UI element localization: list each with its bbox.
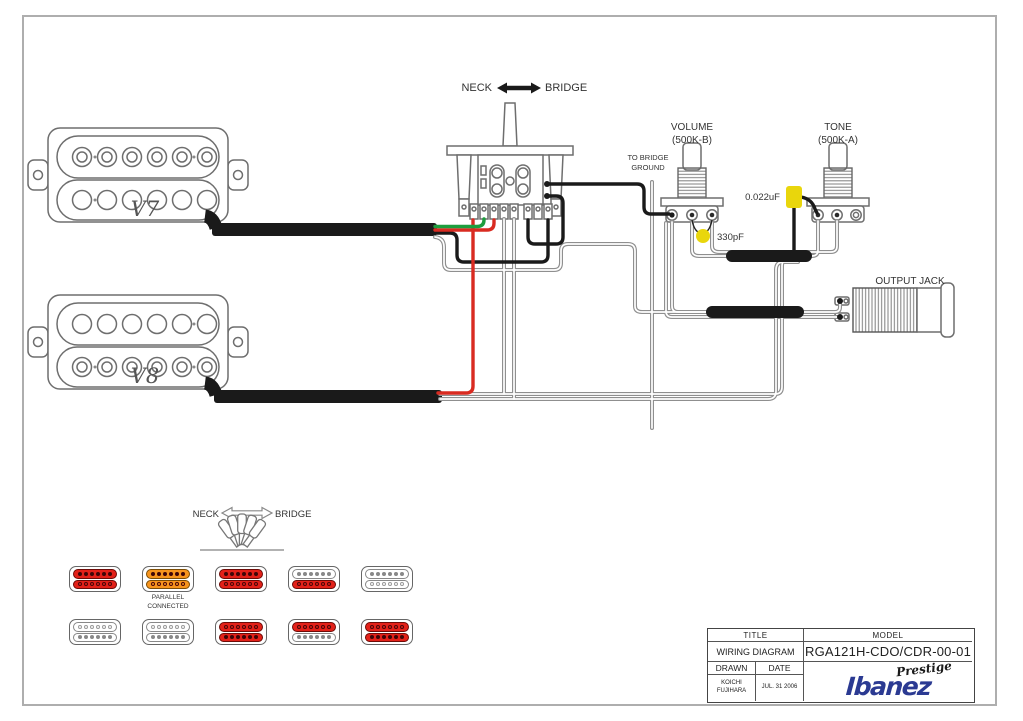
selector-position [285,562,343,645]
chart-coil [146,580,190,590]
chart-coil [219,569,263,579]
bridge-ground-label-2: GROUND [631,163,665,172]
ibanez-logo: Ibanez [845,672,931,701]
treble-bleed-cap [696,229,710,243]
neck-green-wire [435,219,484,227]
selector-position [358,562,416,645]
chart-coil [146,569,190,579]
pickup-selector-switch [447,103,573,219]
tone-label: TONE [824,122,852,133]
jack-cable-sheath [706,306,804,318]
drawn-date: JUL. 31 2006 [756,675,804,701]
chart-coil [292,622,336,632]
chart-coil [292,580,336,590]
model-number: RGA121H-CDO/CDR-00-01 [804,642,972,662]
neck-pickup-label: V7 [131,197,160,221]
chart-coil [365,622,409,632]
parallel-note [213,594,269,615]
volume-tone-cable-sheath [726,250,812,262]
neck-pickup: V7 [28,128,437,236]
chart-coil [219,580,263,590]
drawn-header: DRAWN [708,662,756,675]
parallel-note [359,594,415,615]
pot-shaft [683,143,701,170]
bridge-ground-label-1: TO BRIDGE [627,153,668,162]
chart-coil [73,622,117,632]
title-header: TITLE [708,629,804,642]
chart-coil [219,633,263,643]
chart-pickup-bridge [288,619,340,645]
selector-position: PARALLEL CONNECTED [139,562,197,645]
double-arrow-icon [497,83,541,94]
neck-label: NECK [461,82,492,94]
chart-pickup-neck [142,566,194,592]
chart-pickup-bridge [69,619,121,645]
bridge-pickup: V8 [28,295,442,403]
selector-fan: NECK BRIDGE [193,508,312,551]
parallel-note: PARALLEL CONNECTED [140,594,196,615]
chart-pickup-bridge [361,619,413,645]
selector-position [66,562,124,645]
tone-cap-label: 0.022uF [745,192,780,203]
chart-coil [146,622,190,632]
document-title: WIRING DIAGRAM [708,642,804,662]
chart-pickup-neck [69,566,121,592]
tone-cap [786,186,802,208]
chart-pickup-bridge [142,619,194,645]
output-jack [835,283,954,337]
chart-bridge-label: BRIDGE [275,509,311,520]
model-header: MODEL [804,629,972,642]
chart-neck-label: NECK [193,509,220,520]
switch-lever [503,103,517,146]
date-header: DATE [756,662,804,675]
pickup-cable [214,390,442,403]
chart-coil [292,569,336,579]
chart-coil [73,569,117,579]
bridge-label: BRIDGE [545,82,587,94]
chart-coil [73,633,117,643]
chart-pickup-neck [361,566,413,592]
chart-pickup-bridge [215,619,267,645]
volume-label: VOLUME [671,122,714,133]
pickup-cable [212,223,437,236]
output-jack-label: OUTPUT JACK [875,276,945,287]
chart-coil [292,633,336,643]
parallel-note [286,594,342,615]
pot-shaft [829,143,847,170]
drawn-by: KOICHI FUJIHARA [708,675,756,701]
treble-bleed-label: 330pF [717,232,744,243]
chart-coil [146,633,190,643]
selector-position [212,562,270,645]
title-block: TITLE MODEL WIRING DIAGRAM RGA121H-CDO/C… [707,628,975,703]
parallel-note [67,594,123,615]
selector-chart-columns: PARALLEL CONNECTED [66,562,416,645]
chart-coil [73,580,117,590]
tone-spec: (500K-A) [818,135,858,146]
bridge-pickup-label: V8 [131,364,160,388]
chart-pickup-neck [288,566,340,592]
chart-coil [365,580,409,590]
volume-pot [661,143,723,222]
chart-coil [365,569,409,579]
brand-logo: Prestige Ibanez [804,662,972,701]
chart-pickup-neck [215,566,267,592]
volume-spec: (500K-B) [672,135,712,146]
chart-coil [219,622,263,632]
chart-coil [365,633,409,643]
